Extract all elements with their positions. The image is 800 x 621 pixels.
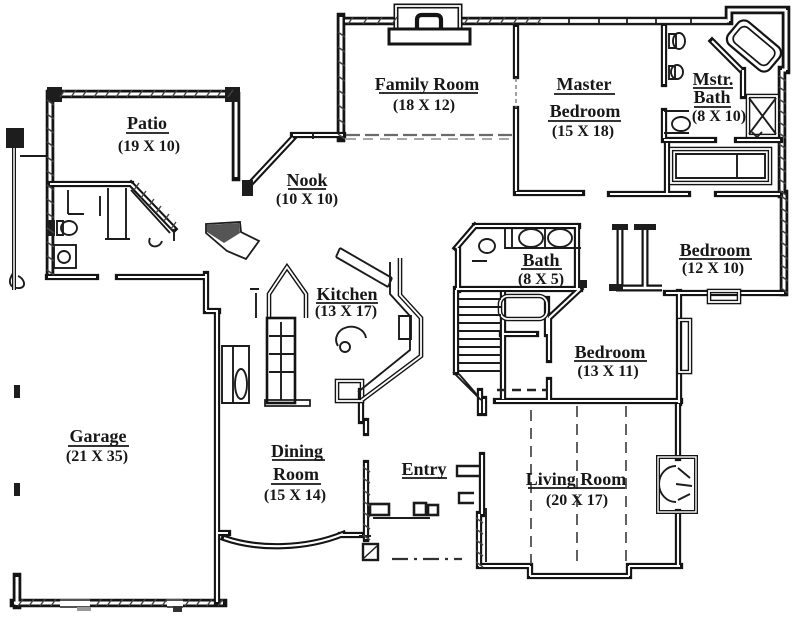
svg-text:Room: Room bbox=[273, 464, 319, 484]
svg-text:Bath: Bath bbox=[693, 87, 730, 107]
svg-text:Bath: Bath bbox=[522, 250, 559, 270]
svg-text:Entry: Entry bbox=[402, 459, 447, 479]
svg-text:Bedroom: Bedroom bbox=[575, 342, 646, 362]
svg-text:Master: Master bbox=[557, 74, 612, 94]
svg-text:(15 X 14): (15 X 14) bbox=[264, 487, 326, 504]
svg-text:(21 X 35): (21 X 35) bbox=[66, 448, 128, 465]
svg-text:(19 X 10): (19 X 10) bbox=[118, 138, 180, 155]
svg-text:(12 X 10): (12 X 10) bbox=[682, 260, 744, 277]
svg-text:Dining: Dining bbox=[271, 441, 323, 461]
svg-text:Bedroom: Bedroom bbox=[550, 101, 621, 121]
svg-text:Bedroom: Bedroom bbox=[680, 240, 751, 260]
svg-text:Garage: Garage bbox=[70, 426, 127, 446]
svg-text:(8 X 5): (8 X 5) bbox=[518, 271, 564, 288]
svg-text:Patio: Patio bbox=[127, 113, 167, 133]
svg-text:Kitchen: Kitchen bbox=[317, 284, 378, 304]
svg-text:(18 X 12): (18 X 12) bbox=[393, 97, 455, 114]
svg-text:(10 X 10): (10 X 10) bbox=[276, 191, 338, 208]
svg-text:(8 X 10): (8 X 10) bbox=[692, 108, 746, 125]
svg-text:Nook: Nook bbox=[286, 170, 327, 190]
svg-text:(20 X 17): (20 X 17) bbox=[546, 492, 608, 509]
svg-text:(13 X 17): (13 X 17) bbox=[315, 303, 377, 320]
svg-text:Mstr.: Mstr. bbox=[693, 69, 734, 89]
svg-text:(15 X 18): (15 X 18) bbox=[552, 123, 614, 140]
svg-text:(13 X 11): (13 X 11) bbox=[577, 363, 638, 380]
svg-text:Family Room: Family Room bbox=[375, 74, 479, 94]
svg-text:Living Room: Living Room bbox=[526, 469, 627, 489]
